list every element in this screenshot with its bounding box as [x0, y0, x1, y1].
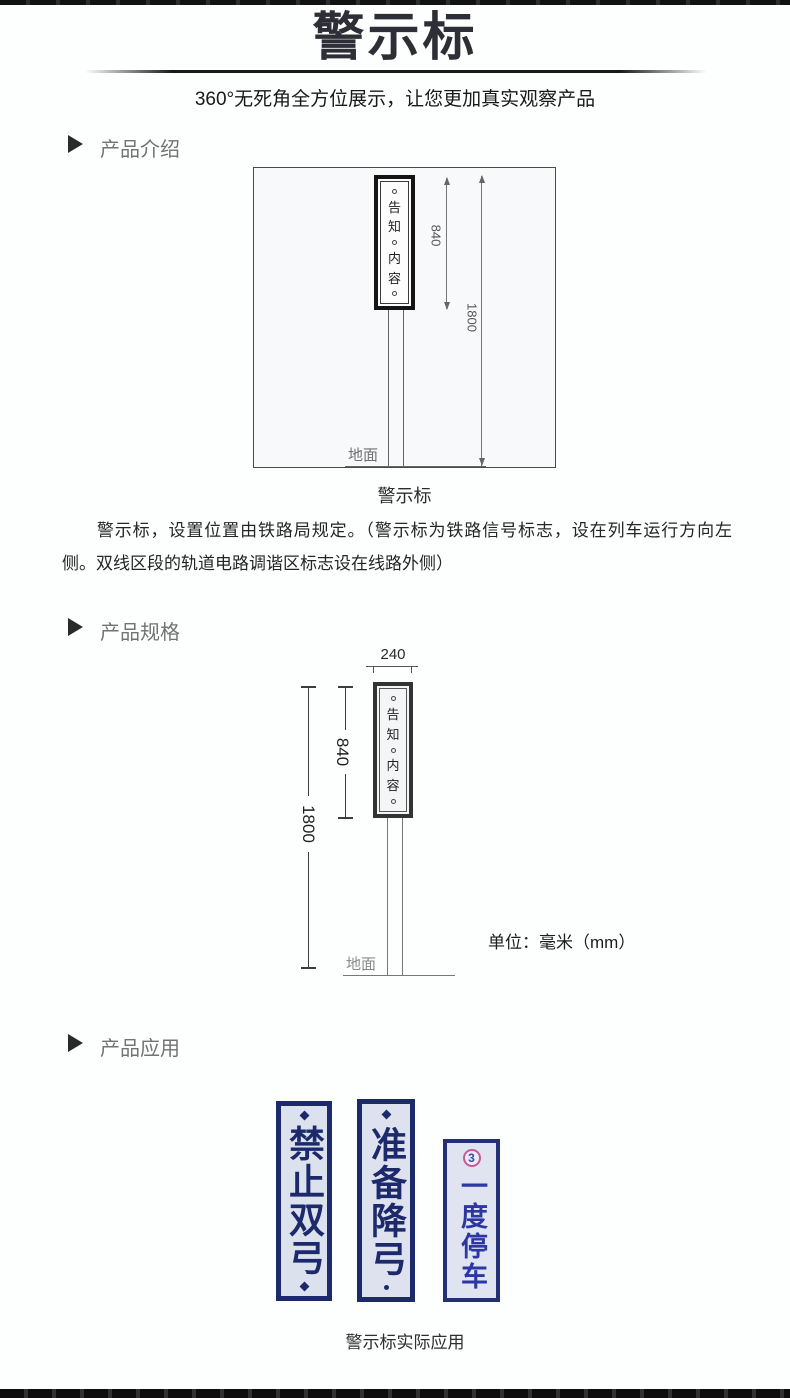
- plate-char: 容: [388, 272, 401, 285]
- plate-char: 容: [386, 779, 399, 792]
- arrow-down-icon: [444, 302, 450, 310]
- page-title: 警示标: [0, 6, 790, 70]
- bolt-hole: [392, 189, 397, 194]
- application-caption: 警示标实际应用: [255, 1328, 555, 1353]
- bolt-hole: [391, 696, 396, 701]
- application-sign-photo: 3 一度停车: [443, 1139, 500, 1302]
- ground-line: [345, 466, 486, 467]
- plate-char: 内: [388, 252, 401, 265]
- notice-plate: 告 知 内 容: [373, 682, 413, 818]
- intro-paragraph: 警示标，设置位置由铁路局规定。（警示标为铁路信号标志，设在列车运行方向左侧。双线…: [62, 514, 732, 580]
- top-decor-bar: [0, 0, 790, 5]
- dimension-label-240: 240: [373, 646, 413, 663]
- notice-plate-face: 告 知 内 容: [379, 688, 407, 812]
- dimension-tick: [411, 666, 412, 673]
- dimension-tick: [301, 686, 316, 688]
- section-label-spec: 产品规格: [100, 616, 180, 645]
- plate-char: 知: [386, 728, 399, 741]
- sign-text: 准备降弓: [368, 1126, 404, 1278]
- arrow-down-icon: [479, 458, 485, 466]
- bolt-hole: [299, 1282, 309, 1292]
- notice-plate-face: 告 知 内 容: [380, 181, 409, 304]
- bolt-hole: [392, 240, 397, 245]
- triangle-bullet-icon: [68, 1034, 83, 1052]
- section-label-app: 产品应用: [100, 1032, 180, 1061]
- bolt-hole: [391, 748, 396, 753]
- bolt-hole: [384, 1285, 389, 1290]
- arrow-up-icon: [479, 175, 485, 183]
- plate-char: 内: [386, 759, 399, 772]
- plate-char: 告: [386, 708, 399, 721]
- ground-line: [343, 975, 455, 976]
- dimension-line-1800: [481, 176, 482, 466]
- application-sign-photo: 禁止双弓: [276, 1101, 332, 1301]
- notice-plate: 告 知 内 容: [374, 175, 415, 310]
- ground-label: 地面: [348, 444, 378, 465]
- intro-diagram: 告 知 内 容 地面 840 1800: [253, 167, 556, 468]
- section-label-intro: 产品介绍: [100, 133, 180, 162]
- sign-post-line: [402, 818, 403, 975]
- dimension-label-1800: 1800: [465, 296, 480, 340]
- dimension-tick: [373, 666, 374, 673]
- triangle-bullet-icon: [68, 618, 83, 636]
- triangle-bullet-icon: [68, 135, 83, 153]
- plate-char: 告: [388, 201, 401, 214]
- dimension-label-840: 840: [429, 214, 444, 258]
- bolt-hole: [299, 1111, 309, 1121]
- bolt-hole: [381, 1110, 391, 1120]
- dimension-line-840: [446, 178, 447, 309]
- sign-badge-icon: 3: [463, 1149, 481, 1167]
- plate-char: 知: [388, 220, 401, 233]
- title-divider: [85, 70, 707, 73]
- product-detail-page: 警示标 360°无死角全方位展示，让您更加真实观察产品 产品介绍 告 知 内 容…: [0, 0, 790, 1398]
- dimension-tick: [338, 817, 353, 819]
- dimension-label-840: 840: [332, 730, 352, 774]
- ground-label: 地面: [346, 953, 376, 974]
- dimension-label-1800: 1800: [298, 796, 318, 852]
- bottom-decor-bar: [0, 1389, 790, 1398]
- sign-post-line: [387, 818, 388, 975]
- dimension-tick: [301, 967, 316, 969]
- sign-text: 一度停车: [458, 1172, 485, 1292]
- sign-post-line: [403, 310, 404, 466]
- application-sign-photo: 准备降弓: [357, 1099, 415, 1302]
- dimension-tick: [338, 686, 353, 688]
- bolt-hole: [392, 291, 397, 296]
- sign-post-line: [388, 310, 389, 466]
- intro-diagram-caption: 警示标: [253, 482, 556, 508]
- arrow-up-icon: [444, 177, 450, 185]
- sign-text: 禁止双弓: [286, 1125, 322, 1277]
- page-subtitle: 360°无死角全方位展示，让您更加真实观察产品: [0, 84, 790, 111]
- units-label: 单位：毫米（mm）: [488, 928, 635, 953]
- bolt-hole: [391, 799, 396, 804]
